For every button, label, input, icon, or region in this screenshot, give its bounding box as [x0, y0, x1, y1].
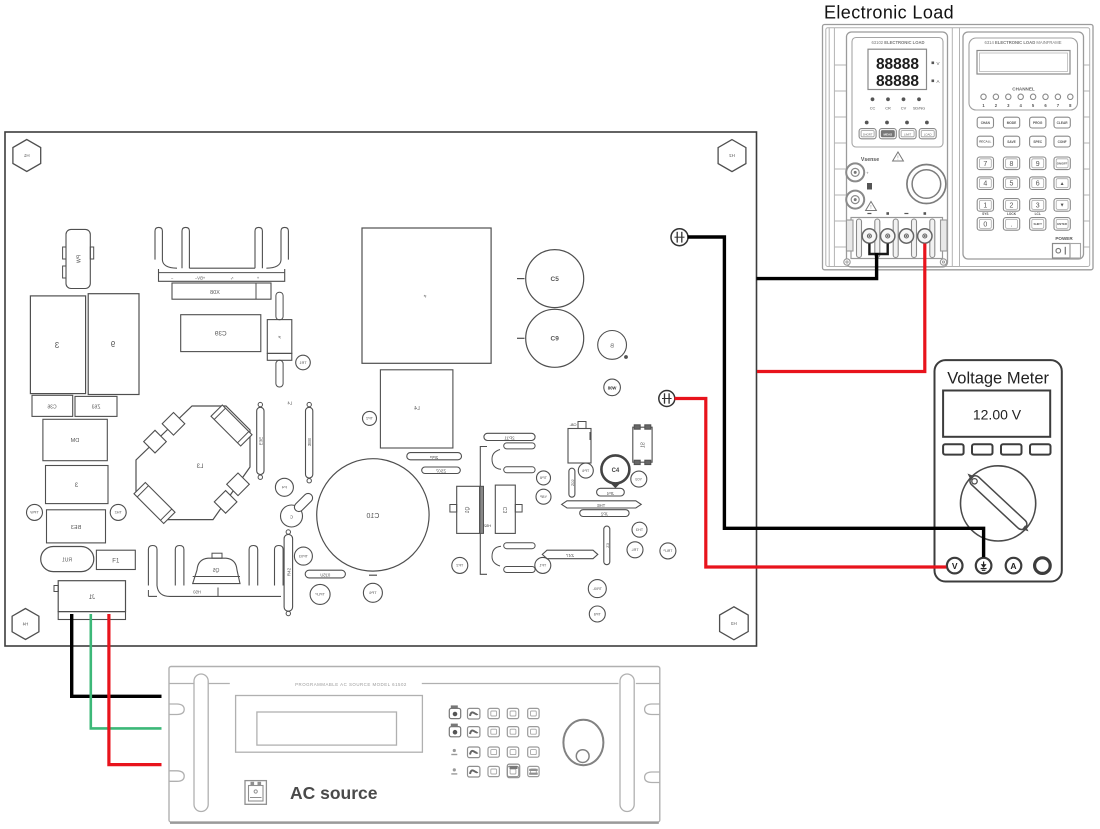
- svg-text:Z47: Z47: [566, 553, 574, 558]
- svg-text:TRL: TRL: [631, 548, 638, 552]
- svg-text:LCL: LCL: [1035, 212, 1041, 216]
- svg-text:≠: ≠: [423, 294, 426, 300]
- svg-text:TR0L: TR0L: [593, 587, 602, 591]
- svg-text:3: 3: [54, 341, 59, 350]
- svg-text:TP6: TP6: [582, 469, 589, 473]
- svg-text:1: 1: [983, 202, 987, 209]
- svg-text:LOCK: LOCK: [1007, 212, 1017, 216]
- svg-text:LIMIT: LIMIT: [904, 133, 911, 137]
- svg-text:BE3: BE3: [71, 525, 81, 531]
- svg-text:C5: C5: [551, 276, 560, 283]
- svg-text:+: +: [866, 171, 869, 176]
- svg-text:DM: DM: [70, 438, 79, 444]
- svg-text:V: V: [952, 561, 958, 571]
- svg-text:CR: CR: [885, 105, 891, 110]
- svg-text:L3: L3: [196, 464, 203, 470]
- svg-text:PROG: PROG: [1033, 121, 1043, 125]
- svg-text:CV: CV: [901, 105, 907, 110]
- svg-text:TPLP: TPLP: [315, 593, 325, 597]
- svg-text:H50: H50: [192, 590, 200, 595]
- svg-text:H52: H52: [484, 524, 491, 528]
- svg-text:ENTER: ENTER: [1057, 222, 1068, 226]
- svg-text:SYS: SYS: [982, 212, 988, 216]
- svg-text:CHAN: CHAN: [981, 121, 991, 125]
- svg-text:C3: C3: [503, 507, 509, 514]
- svg-text:C36: C36: [47, 405, 56, 411]
- svg-text:9: 9: [110, 340, 115, 349]
- svg-text:TP6: TP6: [368, 590, 376, 595]
- svg-text:63102 ELECTRONIC LOAD: 63102 ELECTRONIC LOAD: [871, 40, 924, 45]
- svg-text:SHIFT: SHIFT: [1034, 222, 1043, 226]
- svg-text:4: 4: [983, 181, 987, 188]
- svg-text:TP03: TP03: [299, 554, 308, 558]
- svg-text:MODE: MODE: [1007, 121, 1017, 125]
- svg-text:7: 7: [983, 161, 987, 168]
- svg-text:H3: H3: [731, 621, 737, 626]
- svg-text:CC: CC: [870, 105, 876, 110]
- svg-text:J1: J1: [88, 595, 95, 601]
- svg-text:L4: L4: [287, 401, 293, 406]
- svg-text:+BV−: +BV−: [194, 276, 205, 281]
- svg-text:AC source: AC source: [290, 783, 378, 803]
- svg-text:Y8P: Y8P: [539, 495, 547, 499]
- svg-text:P4: P4: [281, 485, 287, 490]
- svg-text:H2: H2: [729, 153, 735, 158]
- svg-text:S1: S1: [640, 442, 646, 448]
- svg-text:Z63: Z63: [91, 405, 100, 411]
- svg-text:Z3: Z3: [605, 542, 610, 547]
- svg-text:Z02: Z02: [570, 478, 575, 486]
- svg-text:PROGRAMMABLE AC SOURCE MOD: PROGRAMMABLE AC SOURCE MODEL 61502: [295, 682, 407, 687]
- svg-text:RECALL: RECALL: [979, 140, 991, 144]
- svg-text:TP8: TP8: [540, 476, 547, 480]
- svg-text:88888: 88888: [876, 56, 919, 73]
- svg-text:TP2: TP2: [456, 564, 463, 568]
- svg-text:C9: C9: [551, 336, 560, 343]
- svg-text:.: .: [1011, 221, 1013, 228]
- svg-text:TRLP: TRLP: [663, 549, 673, 553]
- svg-text:2P11: 2P11: [504, 436, 515, 441]
- svg-text:TR1: TR1: [299, 361, 306, 365]
- svg-text:Q1: Q1: [465, 507, 471, 514]
- svg-text:▲: ▲: [1060, 181, 1065, 187]
- svg-text:TH2: TH2: [115, 511, 122, 515]
- svg-text:2: 2: [1010, 202, 1014, 209]
- svg-text:Vsense: Vsense: [861, 157, 879, 163]
- svg-text:6314 ELECTRONIC LOAD MAINFRAME: 6314 ELECTRONIC LOAD MAINFRAME: [984, 40, 1061, 45]
- svg-text:H1: H1: [23, 153, 29, 158]
- svg-text:ON/OFF: ON/OFF: [1057, 161, 1068, 165]
- svg-text:SAVE: SAVE: [1007, 140, 1015, 144]
- svg-text:TP1: TP1: [539, 564, 546, 568]
- svg-text:MEAS: MEAS: [883, 133, 892, 137]
- svg-text:12.00 V: 12.00 V: [973, 407, 1022, 423]
- svg-text:3EE: 3EE: [307, 438, 312, 447]
- svg-text:THE: THE: [597, 503, 606, 508]
- svg-text:3: 3: [1036, 202, 1040, 209]
- svg-text:TH3: TH3: [636, 528, 643, 532]
- svg-text:JP4: JP4: [606, 491, 614, 496]
- svg-text:TP8: TP8: [594, 612, 601, 616]
- svg-text:015U: 015U: [320, 573, 330, 578]
- svg-text:A: A: [1010, 561, 1016, 571]
- svg-text:TPW: TPW: [30, 511, 39, 515]
- svg-text:V: V: [936, 61, 939, 66]
- svg-text:X08: X08: [210, 290, 220, 296]
- svg-text:CONF: CONF: [1058, 140, 1067, 144]
- svg-text:0: 0: [983, 221, 987, 228]
- svg-text:L4: L4: [414, 406, 420, 412]
- svg-text:8: 8: [1010, 161, 1014, 168]
- svg-text:Voltage Meter: Voltage Meter: [947, 370, 1049, 388]
- svg-text:CHANNEL: CHANNEL: [1012, 87, 1035, 92]
- svg-text:SD/NG: SD/NG: [913, 105, 925, 110]
- svg-text:POWER: POWER: [1055, 236, 1073, 241]
- svg-text:A: A: [936, 79, 939, 84]
- svg-text:2PP: 2PP: [430, 455, 439, 460]
- svg-text:9: 9: [1036, 161, 1040, 168]
- svg-text:JP2: JP2: [600, 512, 608, 517]
- svg-text:6: 6: [1036, 181, 1040, 188]
- svg-text:H4: H4: [22, 622, 28, 627]
- svg-text:LOAD: LOAD: [924, 133, 932, 137]
- svg-text:SHORT: SHORT: [863, 133, 873, 137]
- svg-text:Y03: Y03: [635, 477, 642, 481]
- svg-text:C39: C39: [214, 331, 226, 338]
- svg-text:▼: ▼: [1060, 203, 1065, 209]
- svg-text:∿: ∿: [230, 276, 234, 281]
- svg-text:C4: C4: [612, 468, 620, 474]
- svg-text:SPEC: SPEC: [1033, 140, 1042, 144]
- svg-text:CLEAR: CLEAR: [1057, 121, 1069, 125]
- svg-text:B: B: [610, 344, 614, 350]
- svg-text:R42: R42: [286, 567, 291, 576]
- svg-text:C8L: C8L: [570, 423, 577, 427]
- svg-text:Electronic Load: Electronic Load: [824, 3, 954, 23]
- svg-text:≠: ≠: [278, 335, 281, 341]
- svg-text:C10: C10: [366, 513, 379, 520]
- svg-text:Q5: Q5: [212, 568, 219, 574]
- svg-text:5: 5: [1010, 181, 1014, 188]
- svg-text:E3E: E3E: [258, 437, 263, 446]
- svg-text:PW: PW: [77, 255, 83, 263]
- svg-text:!: !: [870, 205, 871, 211]
- svg-text:RU1: RU1: [62, 558, 72, 564]
- svg-text:TP2: TP2: [366, 417, 373, 421]
- svg-text:!: !: [897, 156, 898, 162]
- svg-text:ZS07: ZS07: [435, 469, 446, 474]
- svg-text:F1: F1: [112, 559, 120, 565]
- svg-text:W08: W08: [607, 386, 616, 391]
- svg-text:88888: 88888: [876, 73, 919, 90]
